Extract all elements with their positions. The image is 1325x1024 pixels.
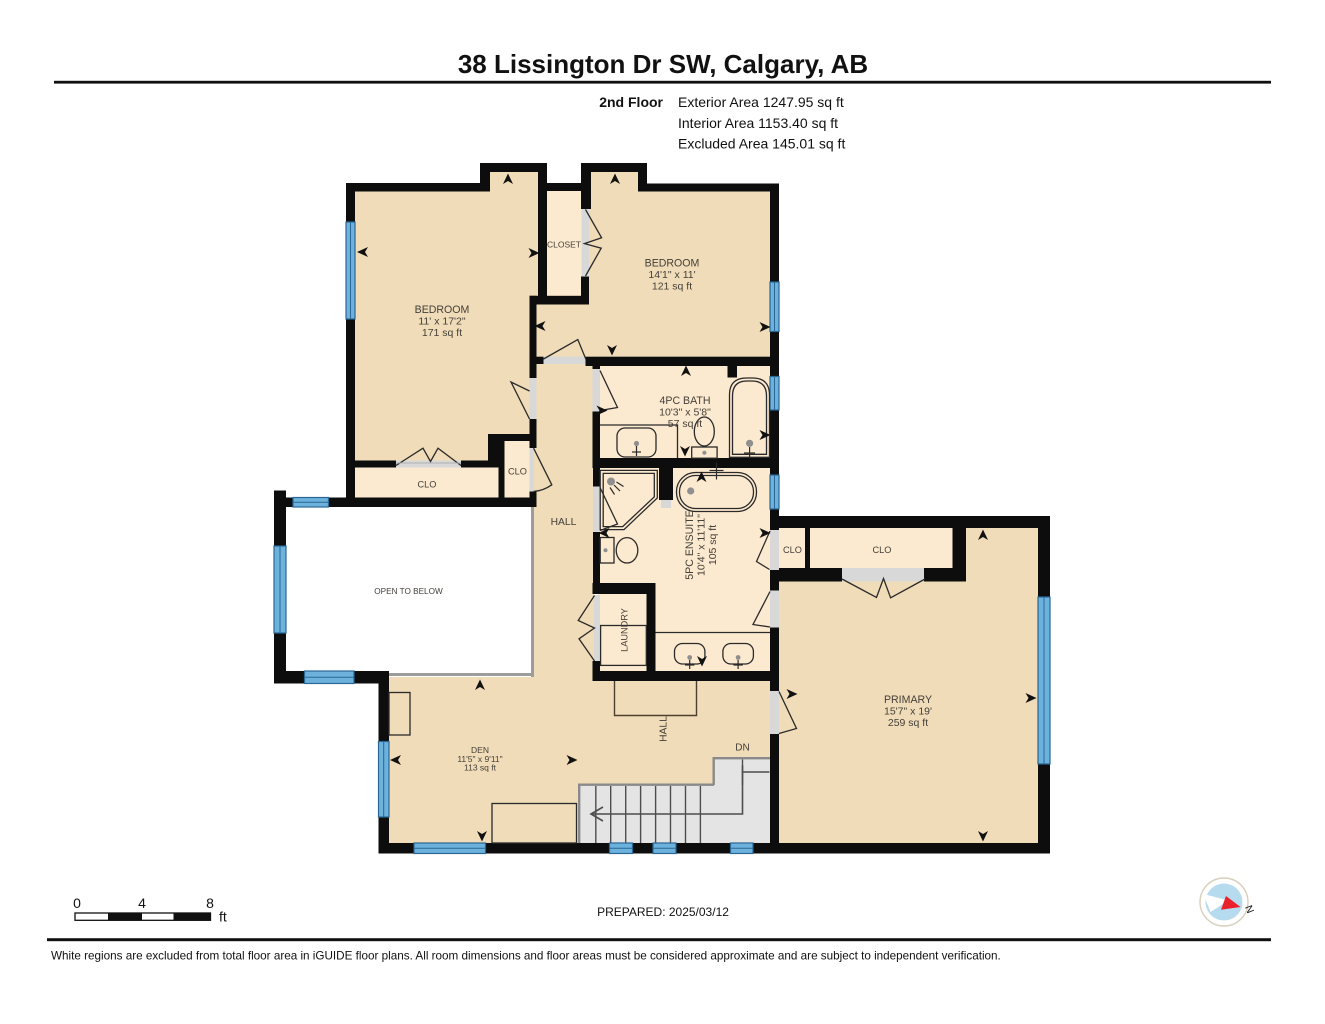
svg-text:0: 0 (73, 895, 81, 911)
svg-text:5PC ENSUITE: 5PC ENSUITE (684, 510, 696, 579)
svg-text:White regions are excluded fro: White regions are excluded from total fl… (51, 950, 1001, 963)
svg-text:121 sq ft: 121 sq ft (652, 281, 692, 293)
svg-text:2nd Floor: 2nd Floor (599, 94, 663, 110)
svg-text:CLO: CLO (783, 545, 802, 555)
svg-text:CLO: CLO (508, 467, 527, 477)
svg-text:PREPARED: 2025/03/12: PREPARED: 2025/03/12 (597, 905, 729, 919)
svg-text:171 sq ft: 171 sq ft (422, 327, 462, 339)
svg-text:15'7" x 19': 15'7" x 19' (884, 706, 932, 718)
svg-text:HALL: HALL (659, 716, 670, 742)
svg-text:57 sq ft: 57 sq ft (668, 418, 703, 430)
svg-text:14'1" x 11': 14'1" x 11' (648, 269, 695, 281)
svg-text:38 Lissington Dr SW, Calgary,: 38 Lissington Dr SW, Calgary, AB (458, 49, 868, 79)
svg-text:10'4" x 11'11": 10'4" x 11'11" (696, 514, 708, 576)
svg-text:LAUNDRY: LAUNDRY (620, 608, 630, 652)
svg-text:CLOSET: CLOSET (547, 240, 581, 250)
svg-text:OPEN TO BELOW: OPEN TO BELOW (374, 587, 443, 596)
svg-text:105 sq ft: 105 sq ft (707, 525, 719, 565)
svg-text:Excluded Area 145.01 sq ft: Excluded Area 145.01 sq ft (678, 136, 845, 152)
svg-text:PRIMARY: PRIMARY (884, 694, 932, 706)
svg-text:Exterior Area 1247.95 sq ft: Exterior Area 1247.95 sq ft (678, 94, 844, 110)
svg-text:ft: ft (219, 909, 227, 925)
svg-text:113 sq ft: 113 sq ft (464, 763, 497, 773)
svg-text:11' x 17'2": 11' x 17'2" (418, 316, 466, 328)
svg-text:HALL: HALL (551, 517, 577, 528)
svg-text:4PC BATH: 4PC BATH (659, 395, 710, 407)
svg-text:CLO: CLO (418, 480, 437, 490)
svg-text:4: 4 (138, 895, 146, 911)
svg-text:Interior Area 1153.40 sq ft: Interior Area 1153.40 sq ft (678, 115, 838, 131)
svg-text:DN: DN (735, 743, 749, 754)
svg-text:BEDROOM: BEDROOM (415, 304, 470, 316)
svg-text:BEDROOM: BEDROOM (645, 258, 700, 270)
svg-text:259 sq ft: 259 sq ft (888, 717, 928, 729)
svg-text:10'3" x 5'8": 10'3" x 5'8" (659, 407, 711, 419)
svg-text:CLO: CLO (873, 545, 892, 555)
svg-text:8: 8 (206, 895, 214, 911)
